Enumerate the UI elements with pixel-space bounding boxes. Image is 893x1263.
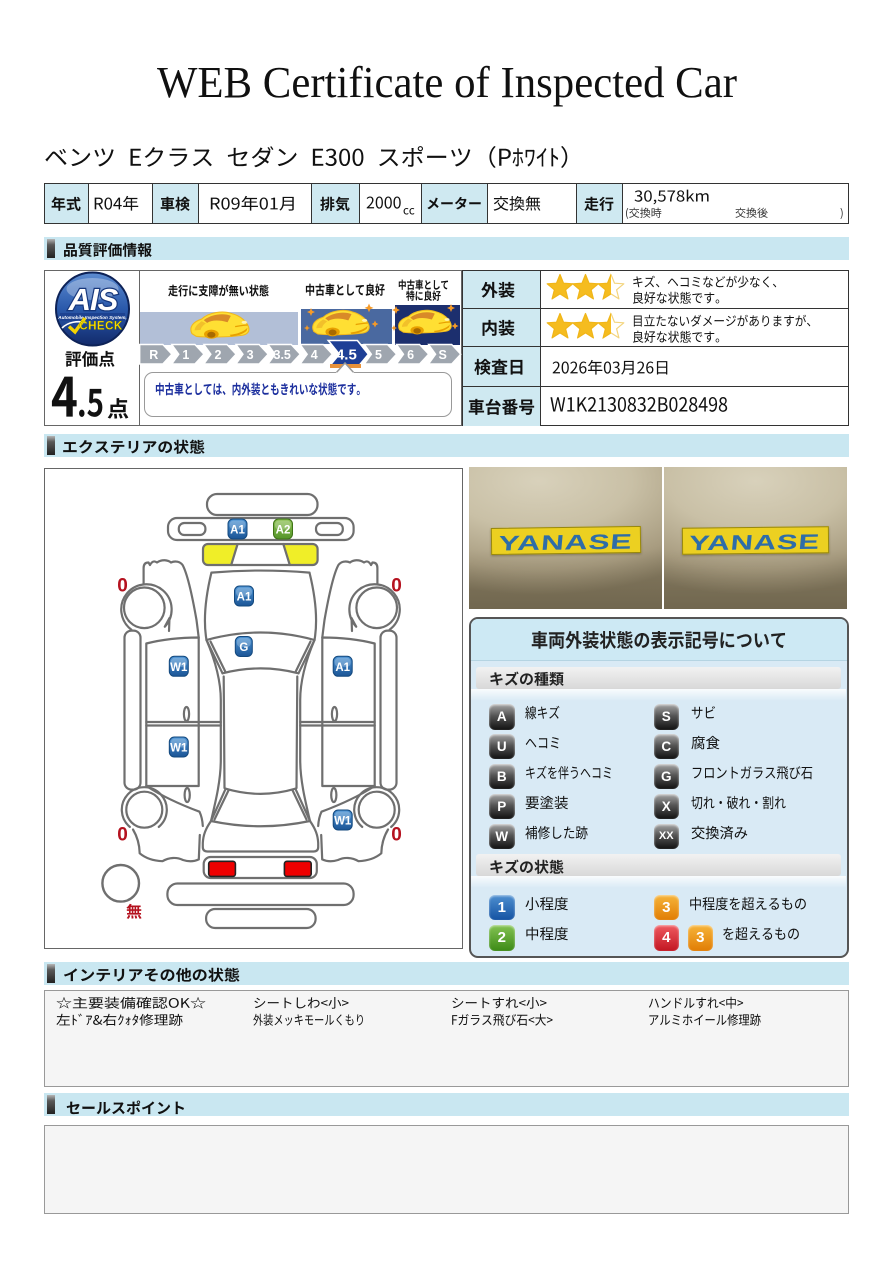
svg-text:0: 0 — [117, 576, 128, 597]
svg-text:A1: A1 — [237, 592, 252, 604]
svg-text:0: 0 — [117, 825, 128, 846]
svg-text:3: 3 — [247, 348, 254, 362]
svg-text:R: R — [149, 348, 158, 362]
svg-text:AIS: AIS — [68, 282, 119, 317]
svg-text:W1: W1 — [170, 662, 188, 674]
svg-text:1: 1 — [182, 348, 189, 362]
svg-text:YANASE: YANASE — [688, 530, 821, 554]
svg-text:A1: A1 — [230, 525, 245, 537]
svg-text:5: 5 — [375, 348, 382, 362]
svg-text:A1: A1 — [335, 662, 350, 674]
svg-text:4: 4 — [311, 348, 318, 362]
svg-text:A2: A2 — [276, 525, 291, 537]
svg-text:0: 0 — [391, 825, 402, 846]
svg-text:CHECK: CHECK — [79, 321, 123, 333]
svg-text:YANASE: YANASE — [497, 530, 633, 555]
svg-text:W1: W1 — [334, 816, 352, 828]
svg-text:Automobile Inspection System,: Automobile Inspection System, — [57, 315, 126, 320]
svg-text:W1: W1 — [170, 743, 188, 755]
svg-text:S: S — [439, 348, 447, 362]
svg-text:2: 2 — [215, 348, 222, 362]
svg-text:0: 0 — [391, 576, 402, 597]
svg-text:G: G — [239, 642, 248, 654]
svg-text:6: 6 — [407, 348, 414, 362]
svg-text:3.5: 3.5 — [274, 348, 291, 362]
svg-text:WEB Certificate of Inspected C: WEB Certificate of Inspected Car — [157, 58, 737, 107]
